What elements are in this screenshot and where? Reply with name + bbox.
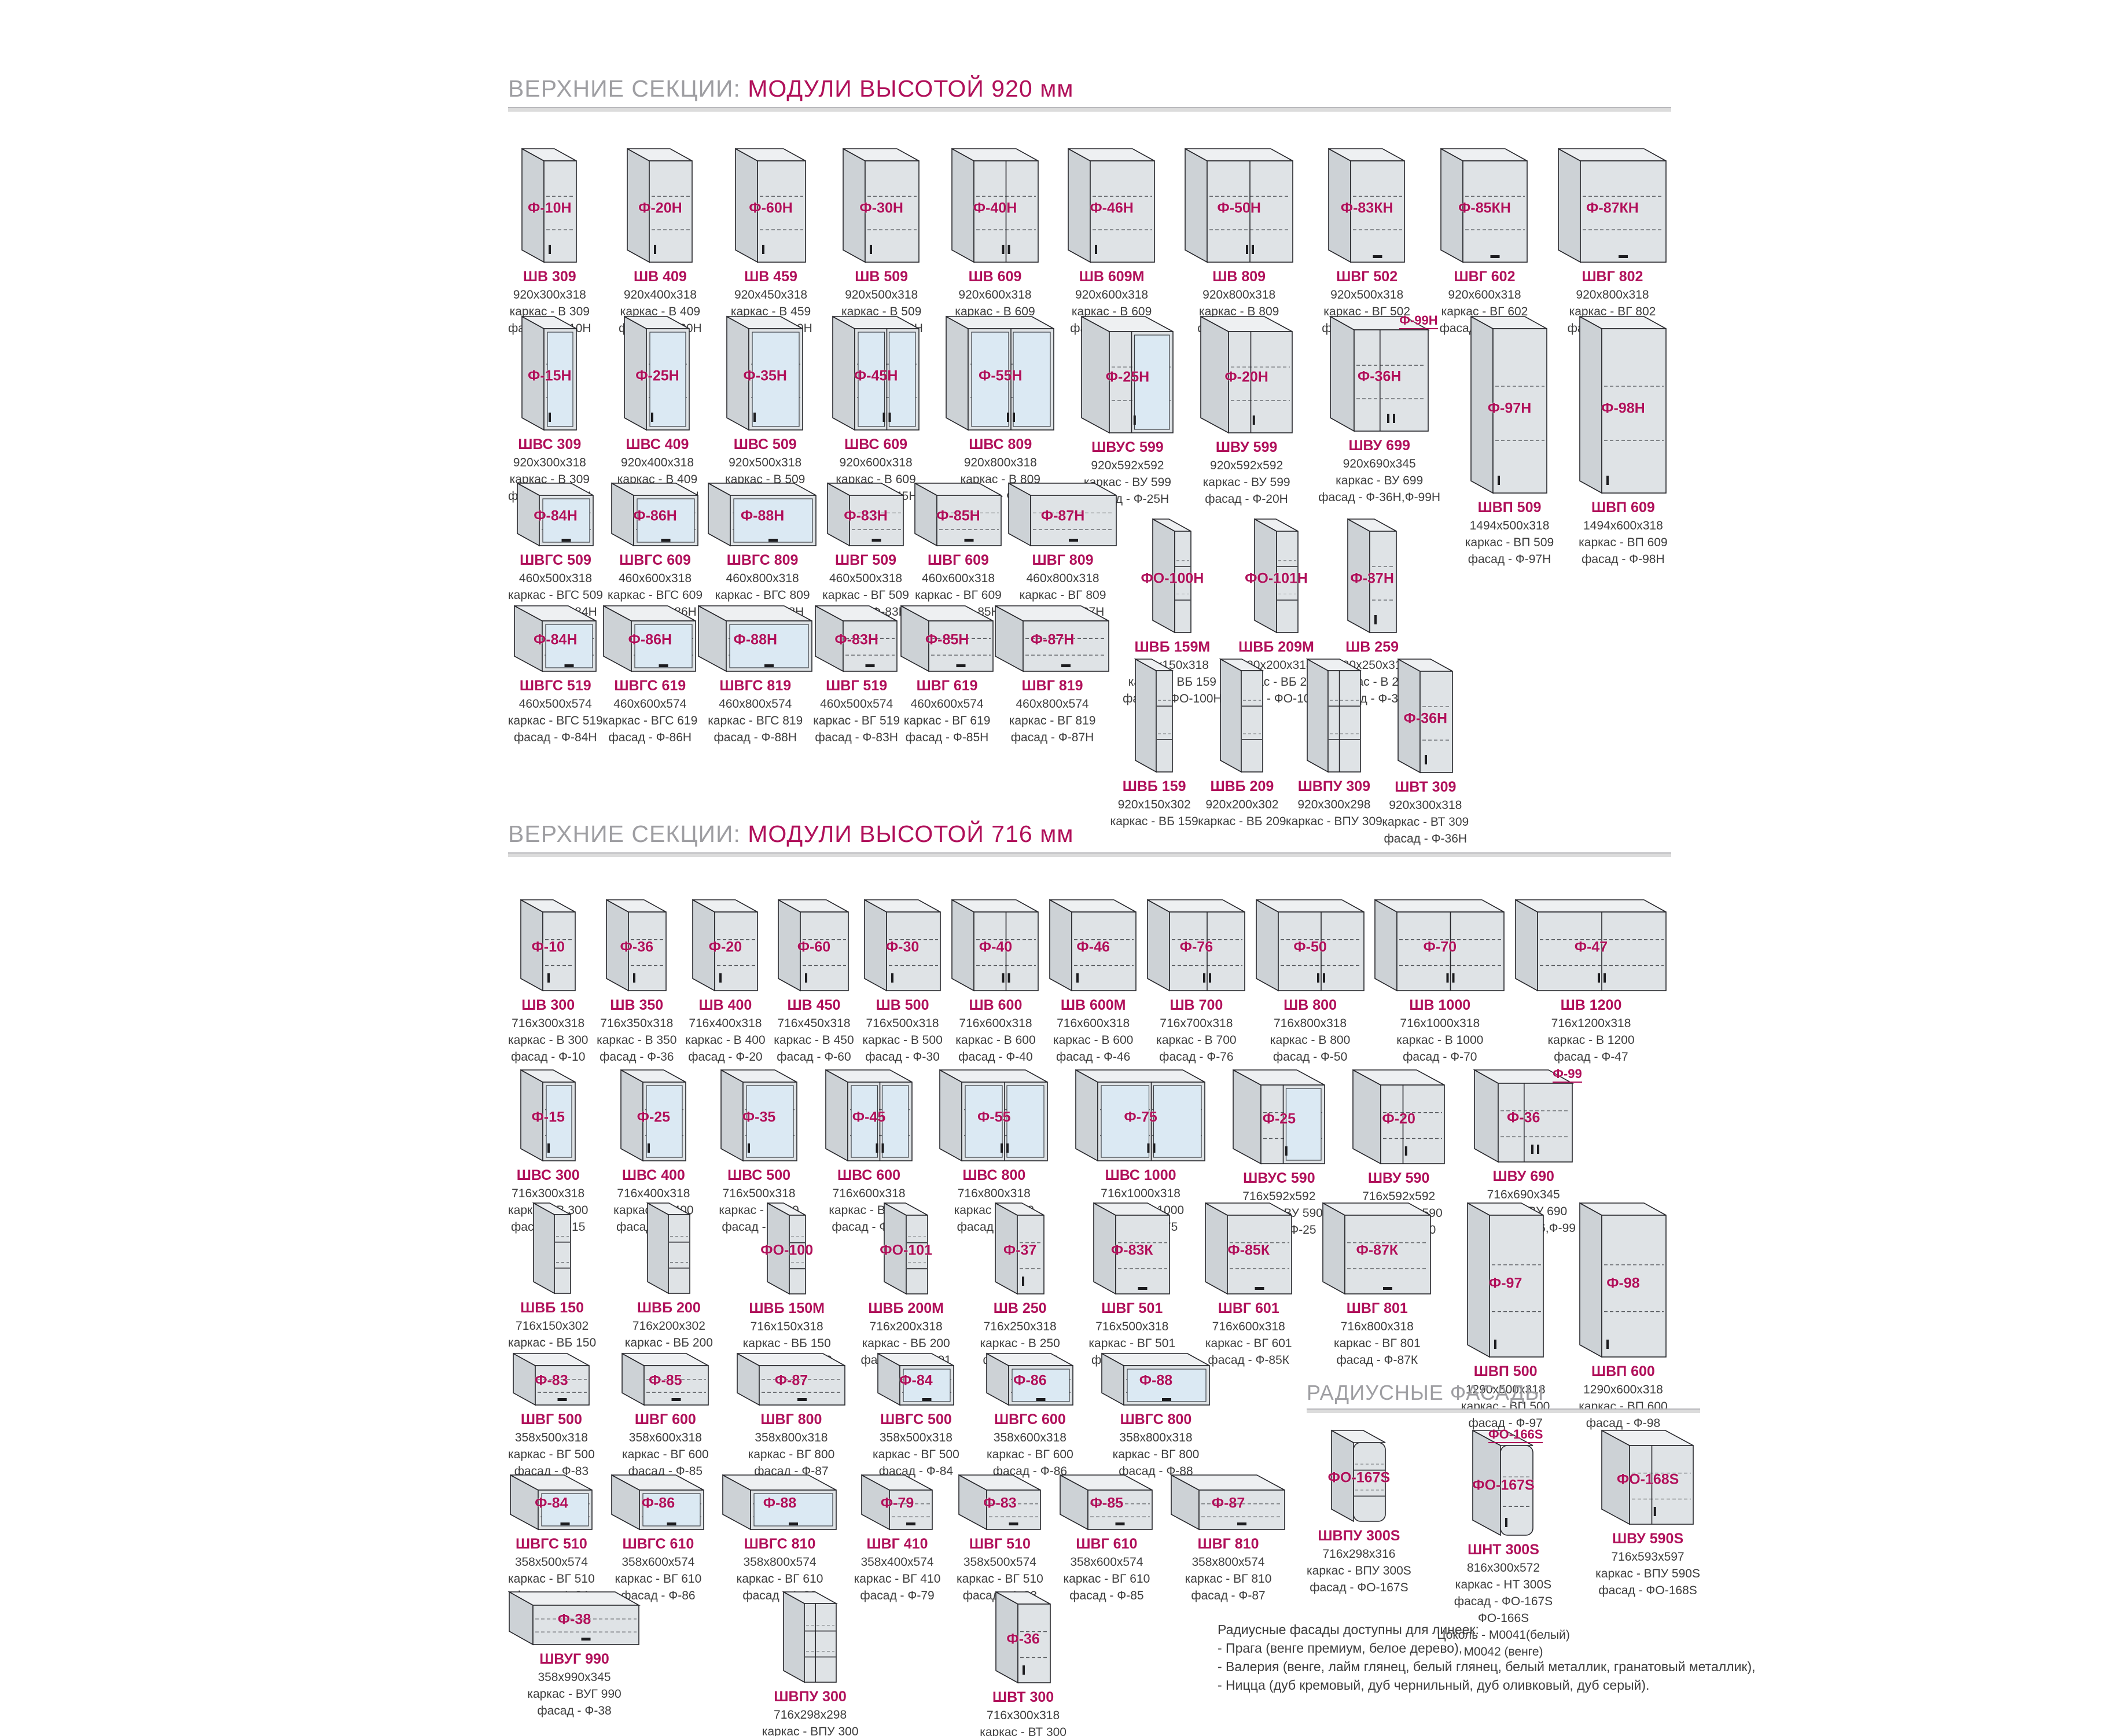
product-caption: ШВГ 619460x600x574каркас - ВГ 619фасад -… [904, 678, 991, 746]
product-spec-line: каркас - ВГ 810 [1185, 1571, 1272, 1587]
product-card: Ф-10ШВ 300716x300x318каркас - В 300фасад… [508, 899, 588, 1065]
facade-label: Ф-85 [1090, 1495, 1123, 1512]
product-name: ШВГС 500 [873, 1411, 959, 1428]
product-figure: Ф-20Н [1200, 315, 1294, 435]
product-figure: Ф-83 [512, 1352, 591, 1407]
product-spec-line: каркас - ВГ 610 [615, 1571, 702, 1587]
product-spec-line: 716x800x318 [954, 1185, 1034, 1202]
facade-label: Ф-10 [531, 939, 564, 956]
product-card: Ф-88НШВГС 819460x800x574каркас - ВГС 819… [697, 605, 813, 746]
product-card: Ф-86НШВГС 609460x600x318каркас - ВГС 609… [608, 482, 703, 620]
product-spec-line: 920x800x318 [959, 454, 1042, 471]
facade-label: Ф-20Н [638, 200, 682, 216]
product-name: ШВГС 809 [715, 552, 810, 569]
product-spec-line: каркас - В 300 [508, 1032, 588, 1049]
product-figure: Ф-25Н [623, 315, 691, 432]
product-spec-line: 920x500x318 [723, 454, 807, 471]
footnote-line: - Валерия (венге, лайм глянец, белый гля… [1218, 1657, 1912, 1676]
product-spec-line: каркас - ВГ 509 [822, 587, 909, 604]
facade-label: ФО-100Н [1141, 570, 1204, 587]
product-spec-line: каркас - В 1200 [1547, 1032, 1634, 1049]
product-spec-line: 716x300x318 [980, 1707, 1066, 1724]
product-spec-line: каркас - ВГ 610 [737, 1571, 823, 1587]
product-name: ШВГ 819 [1009, 678, 1096, 694]
product-card: Ф-86ШВГС 600358x600x318каркас - ВГ 600фа… [985, 1352, 1075, 1480]
product-spec-line: 460x500x574 [508, 696, 603, 712]
product-spec-line: фасад - Ф-47 [1547, 1049, 1634, 1065]
product-figure: Ф-86 [611, 1474, 705, 1531]
product-card: Ф-76ШВ 700716x700x318каркас - В 700фасад… [1146, 899, 1246, 1065]
product-caption: ШВГ 819460x800x574каркас - ВГ 819фасад -… [1009, 678, 1096, 746]
facade-label: Ф-86Н [633, 507, 677, 524]
product-spec-line: каркас - ВГ 519 [813, 712, 900, 729]
product-card: Ф-25НШВС 409920x400x318каркас - В 409фас… [616, 315, 699, 505]
product-spec-line: каркас - ВПУ 300 [762, 1723, 859, 1736]
product-name: ШВБ 159 [1110, 778, 1198, 795]
product-figure: Ф-10 [520, 899, 577, 992]
product-card: ФО-101ШВБ 200М716x200x318каркас - ВБ 200… [860, 1202, 951, 1369]
product-caption: ШВ 600М716x600x318каркас - В 600фасад - … [1053, 997, 1133, 1065]
product-figure: Ф-37 [994, 1202, 1046, 1296]
product-figure: Ф-25 [1232, 1069, 1326, 1165]
footnote-line: Радиусные фасады доступны для линеек: [1218, 1620, 1912, 1639]
facade-label: Ф-10Н [528, 200, 572, 216]
product-name: ШВУ 690 [1471, 1168, 1576, 1185]
product-card: Ф-36ШВ 350716x350x318каркас - В 350фасад… [597, 899, 676, 1065]
facade-label: ФО-167S [1472, 1477, 1535, 1494]
product-card: Ф-60ШВ 450716x450x318каркас - В 450фасад… [774, 899, 854, 1065]
product-spec-line: каркас - В 400 [685, 1032, 765, 1049]
product-figure: Ф-36НФ-99Н [1329, 315, 1430, 433]
product-figure: Ф-40 [951, 899, 1040, 992]
product-spec-line: 716x150x318 [742, 1318, 832, 1335]
product-spec-line: каркас - ВГ 501 [1088, 1335, 1175, 1352]
product-figure: Ф-87КН [1557, 148, 1668, 264]
product-spec-line: 920x592x592 [1084, 457, 1171, 474]
section-title: ВЕРХНИЕ СЕКЦИИ: [508, 821, 741, 847]
product-spec-line: 460x500x318 [508, 570, 603, 587]
product-spec-line: фасад - ФО-168S [1595, 1582, 1700, 1599]
product-row: Ф-83ШВГ 500358x500x318каркас - ВГ 500фас… [508, 1352, 1211, 1480]
product-spec-line: каркас - В 250 [980, 1335, 1060, 1352]
product-figure [1134, 658, 1174, 774]
product-card: ШВПУ 309920x300x298каркас - ВПУ 309 [1286, 658, 1382, 830]
product-name: ШВ 300 [508, 997, 588, 1014]
facade-label: Ф-79 [881, 1495, 914, 1512]
product-spec-line: 358x600x318 [987, 1429, 1073, 1446]
product-spec-line: фасад - Ф-87К [1334, 1352, 1421, 1369]
product-caption: ШВ 800716x800x318каркас - В 800фасад - Ф… [1270, 997, 1350, 1065]
product-spec-line: каркас - ВБ 200 [625, 1334, 713, 1351]
product-spec-line: каркас - ВГС 819 [708, 712, 803, 729]
product-name: ШВС 500 [719, 1167, 799, 1184]
product-spec-line: 716x298x316 [1307, 1546, 1411, 1562]
radius-title: РАДИУСНЫЕ ФАСАДЫ [1307, 1381, 1700, 1405]
product-spec-line: 716x400x318 [613, 1185, 693, 1202]
product-name: ШВ 500 [862, 997, 942, 1014]
product-card: Ф-88НШВГС 809460x800x318каркас - ВГС 809… [707, 482, 818, 620]
product-spec-line: 716x1000x318 [1097, 1185, 1184, 1202]
product-spec-line: каркас - В 600 [955, 1032, 1035, 1049]
product-spec-line: 920x300x298 [1286, 796, 1382, 813]
facade-label: ФО-101Н [1245, 570, 1308, 587]
product-card: Ф-30НШВ 509920x500x318каркас - В 509фаса… [840, 148, 923, 337]
section-rule [508, 852, 1671, 857]
product-spec-line: 716x600x318 [1053, 1015, 1133, 1032]
product-name: ШВС 509 [723, 436, 807, 453]
product-row: Ф-84ШВГС 510358x500x574каркас - ВГ 510фа… [508, 1474, 1286, 1604]
product-card: Ф-87КНШВГ 802920x800x318каркас - ВГ 802ф… [1557, 148, 1668, 337]
facade-label: Ф-25Н [635, 367, 679, 384]
product-caption: ШВУ 590S716x593x597каркас - ВПУ 590Sфаса… [1595, 1531, 1700, 1599]
product-spec-line: фасад - Ф-60 [774, 1049, 854, 1065]
product-name: ШВ 800 [1270, 997, 1350, 1014]
product-figure: Ф-88 [1101, 1352, 1211, 1407]
product-name: ШВГС 600 [987, 1411, 1073, 1428]
product-spec-line: каркас - ВП 509 [1465, 534, 1554, 551]
product-spec-line: фасад - Ф-20 [685, 1049, 765, 1065]
product-card: Ф-87КШВГ 801716x800x318каркас - ВГ 801фа… [1322, 1202, 1432, 1369]
facade-label: Ф-84 [535, 1495, 568, 1512]
product-spec-line: 920x600x318 [1440, 286, 1530, 303]
product-card: Ф-84НШВГС 509460x500x318каркас - ВГС 509… [508, 482, 603, 620]
product-figure: Ф-83Н [826, 482, 905, 547]
facade-label: Ф-55 [977, 1109, 1010, 1126]
facade-label: Ф-30Н [859, 200, 903, 216]
product-card: Ф-83НШВГ 509460x500x318каркас - ВГ 509фа… [822, 482, 909, 620]
product-figure [1219, 658, 1264, 774]
facade-label: Ф-20Н [1224, 369, 1268, 386]
product-spec-line: каркас - ВУГ 990 [527, 1686, 621, 1702]
product-spec-line: 920x400x318 [616, 454, 699, 471]
product-figure: Ф-46 [1049, 899, 1138, 992]
product-caption: ШВГ 800358x800x318каркас - ВГ 800фасад -… [748, 1411, 835, 1480]
facade-label: Ф-83 [983, 1495, 1016, 1512]
product-spec-line: 716x700x318 [1156, 1015, 1236, 1032]
product-figure: Ф-60 [777, 899, 850, 992]
radius-rule [1307, 1408, 1700, 1413]
product-spec-line: фасад - Ф-70 [1396, 1049, 1483, 1065]
product-card: Ф-86НШВГС 619460x600x574каркас - ВГС 619… [603, 605, 698, 746]
product-spec-line: фасад - Ф-85К [1205, 1352, 1292, 1369]
facade-label: Ф-87 [775, 1372, 808, 1389]
product-name: ШВГ 501 [1088, 1300, 1175, 1317]
product-spec-line: фасад - Ф-87 [1185, 1587, 1272, 1604]
product-spec-line: 716x400x318 [685, 1015, 765, 1032]
product-figure: Ф-85К [1204, 1202, 1293, 1296]
product-figure: Ф-30 [863, 899, 942, 992]
product-card: Ф-40ШВ 600716x600x318каркас - В 600фасад… [951, 899, 1040, 1065]
product-name: ШВС 800 [954, 1167, 1034, 1184]
product-figure: ФО-167SФО-166S [1472, 1429, 1535, 1537]
product-figure: Ф-84 [877, 1352, 955, 1407]
product-card: Ф-85ШВГ 610358x600x574каркас - ВГ 610фас… [1059, 1474, 1154, 1604]
product-spec-line: каркас - ВГС 509 [508, 587, 603, 604]
product-card: ФО-168SШВУ 590S716x593x597каркас - ВПУ 5… [1595, 1429, 1700, 1599]
facade-label: Ф-87КН [1586, 200, 1639, 216]
product-spec-line: 358x800x574 [1185, 1554, 1272, 1571]
product-spec-line: фасад - Ф-10 [508, 1049, 588, 1065]
facade-label: Ф-30 [886, 939, 919, 956]
facade-label: Ф-85К [1227, 1242, 1270, 1259]
facade-label-secondary: Ф-99 [1553, 1066, 1582, 1083]
facade-label: Ф-36 [620, 939, 653, 956]
section-title-accent: МОДУЛИ ВЫСОТОЙ 716 мм [748, 821, 1073, 847]
product-name: ШВП 509 [1465, 499, 1554, 516]
product-figure: ФО-167S [1330, 1429, 1387, 1523]
product-spec-line: 716x298x298 [762, 1706, 859, 1723]
facade-label-secondary: Ф-99Н [1399, 313, 1437, 329]
product-name: ШВ 600 [955, 997, 1035, 1014]
facade-label: ФО-100 [760, 1242, 813, 1259]
product-figure: Ф-97Н [1470, 315, 1549, 495]
product-figure: Ф-35 [720, 1069, 799, 1163]
product-figure: Ф-85 [621, 1352, 710, 1407]
product-figure: Ф-87Н [994, 605, 1110, 673]
product-name: ШВГ 600 [622, 1411, 709, 1428]
product-figure [646, 1202, 692, 1295]
radius-facades-section: РАДИУСНЫЕ ФАСАДЫ ФО-167SШВПУ 300S716x298… [1307, 1381, 1700, 1660]
product-spec-line: 716x450x318 [774, 1015, 854, 1032]
product-spec-line: 1494x500x318 [1465, 517, 1554, 534]
product-spec-line: каркас - ВГ 800 [748, 1446, 835, 1463]
product-figure: Ф-85Н [900, 605, 995, 673]
cabinet-drawing [646, 1202, 692, 1295]
product-spec-line: каркас - ВПУ 590S [1595, 1565, 1700, 1582]
product-figure: Ф-50 [1255, 899, 1366, 992]
product-caption: ШВГ 601716x600x318каркас - ВГ 601фасад -… [1205, 1300, 1292, 1369]
product-spec-line: каркас - ВБ 150 [742, 1335, 832, 1352]
facade-label: Ф-45 [852, 1109, 885, 1126]
product-card: Ф-37ШВ 250716x250x318каркас - В 250фасад… [980, 1202, 1060, 1369]
product-name: ШВП 600 [1579, 1363, 1667, 1380]
product-spec-line: 358x400x574 [854, 1554, 941, 1571]
product-spec-line: каркас - ВПУ 300S [1307, 1562, 1411, 1579]
product-spec-line: 716x300x318 [508, 1015, 588, 1032]
product-name: ШВС 609 [834, 436, 918, 453]
facade-label: Ф-84 [899, 1372, 932, 1389]
product-card: ШВБ 200716x200x302каркас - ВБ 200 [625, 1202, 713, 1351]
product-name: ШВ 450 [774, 997, 854, 1014]
facade-label: Ф-25Н [1106, 369, 1150, 386]
facade-label: ФО-167S [1328, 1470, 1391, 1487]
product-card: Ф-20ШВ 400716x400x318каркас - В 400фасад… [685, 899, 765, 1065]
facade-label: Ф-85Н [936, 507, 980, 524]
product-name: ШВГ 601 [1205, 1300, 1292, 1317]
product-card: ШВБ 209920x200x302каркас - ВБ 209 [1198, 658, 1286, 830]
product-name: ШВГ 800 [748, 1411, 835, 1428]
product-figure: Ф-85 [1059, 1474, 1154, 1531]
product-figure: Ф-88 [722, 1474, 838, 1531]
product-card: Ф-85НШВГ 609460x600x318каркас - ВГ 609фа… [914, 482, 1003, 620]
product-spec-line: 716x200x302 [625, 1318, 713, 1334]
product-figure [532, 1202, 572, 1295]
product-spec-line: 358x800x318 [1113, 1429, 1200, 1446]
product-card: Ф-86ШВГС 610358x600x574каркас - ВГ 610фа… [611, 1474, 705, 1604]
facade-label: Ф-88 [1139, 1372, 1172, 1389]
product-spec-line: каркас - В 1000 [1396, 1032, 1483, 1049]
product-name: ШВГ 509 [822, 552, 909, 569]
product-spec-line: каркас - ВГ 609 [915, 587, 1002, 604]
product-caption: ШВГС 619460x600x574каркас - ВГС 619фасад… [602, 678, 697, 746]
product-card: Ф-84ШВГС 510358x500x574каркас - ВГ 510фа… [508, 1474, 595, 1604]
product-figure: Ф-15 [520, 1069, 577, 1163]
facade-label: Ф-84Н [534, 632, 578, 649]
product-spec-line: 920x300x318 [1382, 797, 1469, 814]
product-spec-line: 716x350x318 [597, 1015, 676, 1032]
product-figure: Ф-20Н [626, 148, 694, 264]
cabinet-drawing [532, 1202, 572, 1295]
product-name: ШВГС 819 [708, 678, 803, 694]
product-spec-line: 920x600x318 [834, 454, 918, 471]
product-name: ШВС 309 [508, 436, 591, 453]
footnote-line: - Ницца (дуб кремовый, дуб чернильный, д… [1218, 1676, 1912, 1694]
product-name: ШВГ 610 [1064, 1536, 1150, 1553]
facade-label: Ф-25 [1263, 1110, 1296, 1127]
product-figure [1306, 658, 1362, 774]
product-figure: Ф-40Н [951, 148, 1040, 264]
product-caption: ШВГ 600358x600x318каркас - ВГ 600фасад -… [622, 1411, 709, 1480]
product-name: ШВГ 619 [904, 678, 991, 694]
product-spec-line: фасад - ФО-167S [1307, 1579, 1411, 1596]
product-spec-line: 460x500x574 [813, 696, 900, 712]
product-figure: Ф-98 [1579, 1202, 1668, 1359]
product-figure: Ф-45 [825, 1069, 914, 1163]
product-card: ФО-167SШВПУ 300S716x298x316каркас - ВПУ … [1307, 1429, 1411, 1596]
product-name: ШВГ 502 [1322, 269, 1412, 285]
product-spec-line: каркас - ВГ 500 [508, 1446, 595, 1463]
cabinet-drawing [1306, 658, 1362, 774]
product-figure: Ф-55Н [945, 315, 1056, 432]
product-name: ШВ 350 [597, 997, 676, 1014]
product-name: ШВГ 519 [813, 678, 900, 694]
product-spec-line: 920x600x318 [954, 286, 1037, 303]
product-caption: ШВГС 819460x800x574каркас - ВГС 819фасад… [708, 678, 803, 746]
product-card: Ф-25НШВУС 599920x592x592каркас - ВУ 599ф… [1080, 315, 1175, 507]
product-spec-line: 716x200x318 [860, 1318, 951, 1335]
product-spec-line: каркас - ВГС 519 [508, 712, 603, 729]
product-spec-line: каркас - ВГС 609 [608, 587, 703, 604]
product-caption: ШВ 500716x500x318каркас - В 500фасад - Ф… [862, 997, 942, 1065]
product-figure: Ф-87 [1170, 1474, 1286, 1531]
facade-label: Ф-76 [1180, 939, 1213, 956]
product-figure: Ф-98Н [1579, 315, 1668, 495]
product-spec-line: 716x250x318 [980, 1318, 1060, 1335]
product-name: ШВГС 510 [508, 1536, 595, 1553]
product-spec-line: 460x800x574 [1009, 696, 1096, 712]
product-spec-line: каркас - ВГ 510 [957, 1571, 1043, 1587]
product-spec-line: 920x150x302 [1110, 796, 1198, 813]
product-card: Ф-50НШВ 809920x800x318каркас - В 809фаса… [1184, 148, 1294, 337]
product-figure: Ф-88Н [697, 605, 814, 673]
product-spec-line: 358x600x318 [622, 1429, 709, 1446]
product-spec-line: фасад - Ф-85 [1064, 1587, 1150, 1604]
product-row: Ф-10НШВ 309920x300x318каркас - В 309фаса… [508, 148, 1668, 337]
product-spec-line: фасад - Ф-85Н [904, 729, 991, 746]
facade-label: Ф-50Н [1217, 200, 1261, 216]
product-spec-line: 716x593x597 [1595, 1549, 1700, 1565]
facade-label: Ф-36Н [1404, 710, 1448, 727]
product-name: ШВГ 802 [1568, 269, 1658, 285]
facade-label: ФО-168S [1617, 1471, 1679, 1488]
product-spec-line: каркас - ВГ 601 [1205, 1335, 1292, 1352]
product-name: ШВ 459 [729, 269, 812, 285]
product-caption: ШВ 400716x400x318каркас - В 400фасад - Ф… [685, 997, 765, 1065]
product-name: ШВГС 519 [508, 678, 603, 694]
product-card: Ф-38ШВУГ 990358x990x345каркас - ВУГ 990ф… [508, 1591, 641, 1719]
product-spec-line: 358x800x318 [748, 1429, 835, 1446]
product-card: Ф-40НШВ 609920x600x318каркас - В 609фаса… [951, 148, 1040, 337]
product-spec-line: фасад - Ф-97Н [1465, 551, 1554, 568]
catalog-page: ВЕРХНИЕ СЕКЦИИ: МОДУЛИ ВЫСОТОЙ 920 мм Ф-… [0, 0, 2122, 1736]
product-name: ШВБ 209 [1198, 778, 1286, 795]
product-card: Ф-98НШВП 6091494x600x318каркас - ВП 609ф… [1579, 315, 1668, 568]
product-name: ШВС 600 [829, 1167, 909, 1184]
product-card: Ф-83КНШВГ 502920x500x318каркас - ВГ 502ф… [1322, 148, 1412, 337]
product-spec-line: каркас - ВГ 410 [854, 1571, 941, 1587]
product-figure: Ф-85КН [1440, 148, 1529, 264]
product-figure: Ф-10Н [521, 148, 578, 264]
product-card: Ф-87НШВГ 819460x800x574каркас - ВГ 819фа… [994, 605, 1110, 746]
product-card: Ф-83ШВГ 510358x500x574каркас - ВГ 510фас… [957, 1474, 1043, 1604]
product-spec-line: 920x500x318 [840, 286, 923, 303]
product-name: ШВГ 500 [508, 1411, 595, 1428]
product-figure: ФО-168S [1601, 1429, 1695, 1526]
product-name: ШВУ 590S [1595, 1531, 1700, 1547]
product-card: Ф-87ШВГ 800358x800x318каркас - ВГ 800фас… [736, 1352, 847, 1480]
product-spec-line: 716x600x318 [829, 1185, 909, 1202]
facade-label: Ф-37Н [1350, 570, 1394, 587]
product-spec-line: каркас - В 450 [774, 1032, 854, 1049]
product-figure: Ф-83 [958, 1474, 1042, 1531]
product-figure [782, 1591, 838, 1684]
product-spec-line: каркас - ВГ 809 [1020, 587, 1106, 604]
facade-label: Ф-46Н [1090, 200, 1134, 216]
product-name: ШВБ 200 [625, 1300, 713, 1316]
product-figure: Ф-86Н [602, 605, 697, 673]
product-caption: ШВ 1000716x1000x318каркас - В 1000фасад … [1396, 997, 1483, 1065]
product-card: Ф-70ШВ 1000716x1000x318каркас - В 1000фа… [1374, 899, 1506, 1065]
facade-label: Ф-70 [1424, 939, 1457, 956]
product-name: ШВГ 801 [1334, 1300, 1421, 1317]
product-card: Ф-87НШВГ 809460x800x318каркас - ВГ 809фа… [1007, 482, 1118, 620]
product-figure: Ф-55 [939, 1069, 1049, 1163]
facade-label: Ф-36 [1507, 1110, 1540, 1127]
facade-label: Ф-97 [1489, 1275, 1522, 1292]
product-figure: Ф-45Н [832, 315, 921, 432]
product-spec-line: фасад - Ф-50 [1270, 1049, 1350, 1065]
facade-label: Ф-85Н [925, 632, 969, 649]
product-spec-line: каркас - ВГС 809 [715, 587, 810, 604]
product-caption: ШВБ 150716x150x302каркас - ВБ 150 [508, 1300, 596, 1351]
product-spec-line: 460x600x574 [904, 696, 991, 712]
facade-label: Ф-85КН [1458, 200, 1511, 216]
product-spec-line: 716x800x318 [1270, 1015, 1350, 1032]
product-spec-line: 716x600x318 [1205, 1318, 1292, 1335]
product-name: ШВУС 590 [1235, 1170, 1323, 1187]
product-figure: Ф-87К [1322, 1202, 1432, 1296]
facade-label: Ф-36 [1006, 1631, 1039, 1648]
product-row: Ф-38ШВУГ 990358x990x345каркас - ВУГ 990ф… [508, 1591, 1066, 1736]
product-name: ШВС 1000 [1097, 1167, 1184, 1184]
product-spec-line: каркас - ВТ 300 [980, 1724, 1066, 1736]
product-spec-line: 460x600x318 [608, 570, 703, 587]
product-figure: Ф-84 [509, 1474, 594, 1531]
product-card: Ф-20НШВУ 599920x592x592каркас - ВУ 599фа… [1200, 315, 1294, 507]
product-name: ШВ 609М [1070, 269, 1153, 285]
facade-label-secondary: ФО-166S [1488, 1427, 1543, 1443]
facade-label: Ф-98 [1606, 1275, 1639, 1292]
